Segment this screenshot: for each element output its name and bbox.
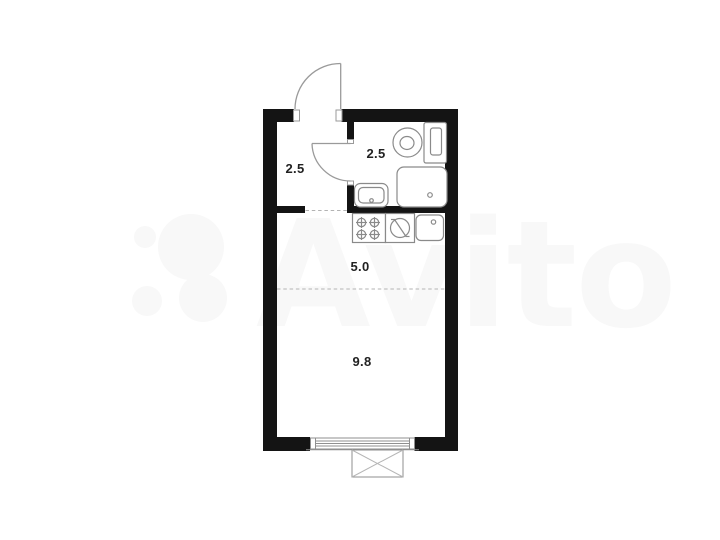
kitchen-area-label: 5.0 [351,259,370,274]
window-icon [306,438,419,450]
entrance-door-icon [294,63,343,121]
wall-bathroom-left-lower [347,181,354,213]
floorplan-image: Avito [0,0,720,540]
door-swing-arc [295,63,341,109]
wall-bottom-left-segment [263,437,310,451]
bathroom-sink-icon [355,184,389,208]
living-room-area-label: 9.8 [353,354,372,369]
balcony-icon [352,450,403,477]
door-jamb [294,110,300,121]
bathroom-area-label: 2.5 [367,146,386,161]
washing-machine-icon [386,214,415,243]
kitchen-sink-icon [416,215,444,241]
door-swing-arc [312,144,351,182]
shower-icon [397,167,447,207]
hallway-area-label: 2.5 [286,161,305,176]
avito-logo-icon [132,214,227,322]
wall-left [263,109,277,451]
toilet-icon [393,123,447,164]
watermark-text: Avito [256,189,675,361]
stove-icon [353,214,386,243]
door-jamb [336,110,342,121]
interior-door-icon [312,140,354,186]
wall-bottom-right-segment [415,437,459,451]
wall-top-left-segment [263,109,294,122]
wall-hallway-kitchen [277,206,305,213]
wall-top-right-segment [342,109,459,122]
